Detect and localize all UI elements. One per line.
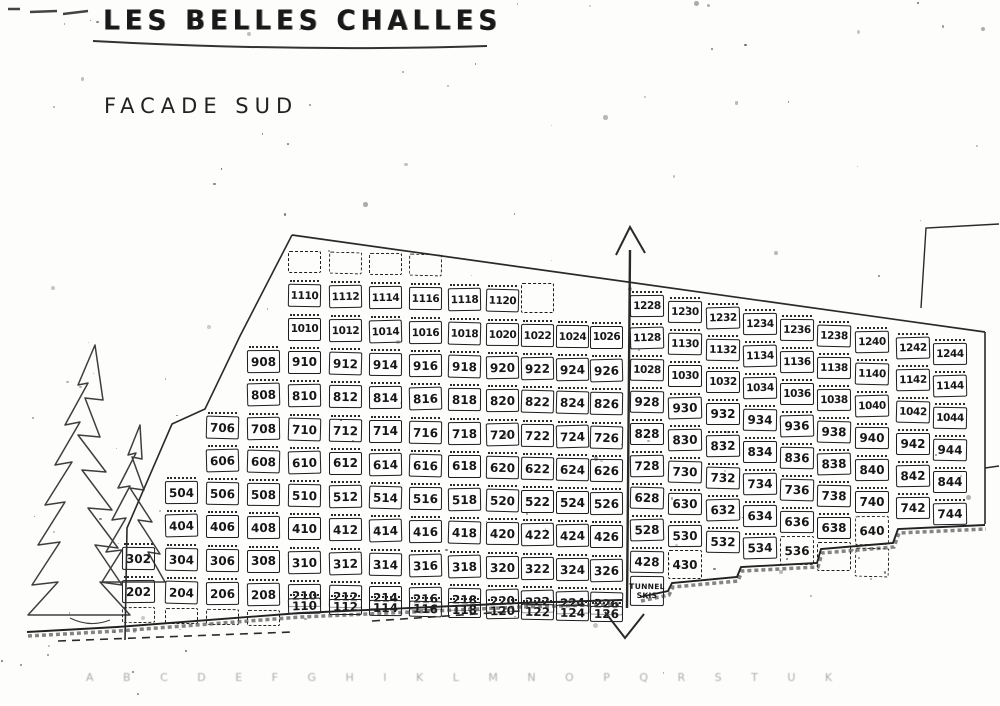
unit-920: 920 [486,349,519,379]
unit-828: 828 [630,416,664,445]
unit-626: 626 [590,452,623,482]
unit-616: 616 [409,447,442,477]
unit-732: 732 [706,460,740,489]
unit-122: 122 [521,598,554,620]
unit-734: 734 [743,466,777,495]
unit-206: 206 [206,575,239,605]
unit-914: 914 [369,346,402,376]
unit-430: 430 [668,550,702,579]
ghost-cell [288,251,321,273]
unit-1032: 1032 [706,364,740,393]
unit-1042: 1042 [896,394,930,423]
unit-1144: 1144 [933,368,967,397]
unit-424: 424 [556,517,589,547]
unit-418: 418 [448,514,481,544]
unit-610: 610 [288,444,321,474]
ghost-cell [817,542,851,571]
unit-528: 528 [630,512,664,541]
unit-208: 208 [247,576,280,606]
unit-742: 742 [896,490,930,519]
unit-924: 924 [556,351,589,381]
unit-512: 512 [329,478,362,508]
unit-306: 306 [206,542,239,572]
unit-622: 622 [521,450,554,480]
ghost-cell [206,609,239,625]
unit-1022: 1022 [521,317,554,347]
unit-304: 304 [165,541,198,571]
ghost-cell [409,254,442,276]
unit-1242: 1242 [896,330,930,359]
unit-940: 940 [855,420,889,449]
unit-314: 314 [369,546,402,576]
unit-618: 618 [448,448,481,478]
unit-416: 416 [409,513,442,543]
unit-840: 840 [855,452,889,481]
ghost-cell [122,607,155,623]
unit-114: 114 [369,594,402,616]
unit-526: 526 [590,485,623,515]
unit-126: 126 [590,600,623,622]
unit-1236: 1236 [780,312,814,341]
unit-724: 724 [556,418,589,448]
unit-832: 832 [706,428,740,457]
unit-524: 524 [556,484,589,514]
unit-1020: 1020 [486,316,519,346]
unit-710: 710 [288,411,321,441]
unit-912: 912 [329,345,362,375]
unit-120: 120 [486,597,519,619]
unit-816: 816 [409,380,442,410]
unit-202: 202 [122,573,155,603]
unit-930: 930 [668,390,702,419]
unit-406: 406 [206,508,239,538]
unit-310: 310 [288,544,321,574]
unit-824: 824 [556,384,589,414]
unit-414: 414 [369,512,402,542]
unit-116: 116 [409,595,442,617]
unit-1118: 1118 [448,281,481,311]
unit-518: 518 [448,481,481,511]
unit-636: 636 [780,504,814,533]
unit-938: 938 [817,414,851,443]
unit-744: 744 [933,496,967,525]
unit-736: 736 [780,472,814,501]
unit-506: 506 [206,475,239,505]
unit-1012: 1012 [329,312,362,342]
unit-530: 530 [668,518,702,547]
unit-1240: 1240 [855,324,889,353]
unit-818: 818 [448,381,481,411]
unit-1128: 1128 [630,320,664,349]
unit-928: 928 [630,384,664,413]
ghost-cell [521,283,554,313]
unit-312: 312 [329,545,362,575]
unit-834: 834 [743,434,777,463]
unit-638: 638 [817,510,851,539]
unit-508: 508 [247,476,280,506]
unit-712: 712 [329,412,362,442]
unit-516: 516 [409,480,442,510]
unit-812: 812 [329,378,362,408]
unit-1026: 1026 [590,319,623,349]
unit-934: 934 [743,402,777,431]
unit-404: 404 [165,507,198,537]
unit-412: 412 [329,511,362,541]
unit-1244: 1244 [933,336,967,365]
unit-606: 606 [206,442,239,472]
unit-534: 534 [743,530,777,559]
unit-124: 124 [556,599,589,621]
unit-728: 728 [630,448,664,477]
unit-628: 628 [630,480,664,509]
unit-302: 302 [122,540,155,570]
unit-814: 814 [369,379,402,409]
unit-808: 808 [247,376,280,406]
unit-316: 316 [409,547,442,577]
unit-1016: 1016 [409,314,442,344]
unit-844: 844 [933,464,967,493]
unit-730: 730 [668,454,702,483]
unit-1228: 1228 [630,288,664,317]
ghost-cell [855,548,889,577]
unit-318: 318 [448,548,481,578]
unit-918: 918 [448,348,481,378]
unit-718: 718 [448,415,481,445]
unit-532: 532 [706,524,740,553]
unit-1132: 1132 [706,332,740,361]
unit-1138: 1138 [817,350,851,379]
unit-640: 640 [855,516,889,545]
unit-706: 706 [206,409,239,439]
unit-908: 908 [247,343,280,373]
unit-830: 830 [668,422,702,451]
unit-1014: 1014 [369,313,402,343]
unit-510: 510 [288,477,321,507]
unit-1112: 1112 [329,278,362,308]
unit-620: 620 [486,449,519,479]
unit-1232: 1232 [706,300,740,329]
unit-714: 714 [369,413,402,443]
unit-822: 822 [521,383,554,413]
unit-1028: 1028 [630,352,664,381]
unit-1234: 1234 [743,306,777,335]
unit-944: 944 [933,432,967,461]
unit-1140: 1140 [855,356,889,385]
unit-926: 926 [590,352,623,382]
unit-608: 608 [247,443,280,473]
unit-612: 612 [329,445,362,475]
unit-614: 614 [369,446,402,476]
unit-1116: 1116 [409,280,442,310]
unit-426: 426 [590,518,623,548]
unit-522: 522 [521,483,554,513]
unit-738: 738 [817,478,851,507]
unit-204: 204 [165,574,198,604]
unit-708: 708 [247,410,280,440]
unit-1238: 1238 [817,318,851,347]
unit-1018: 1018 [448,315,481,345]
unit-308: 308 [247,543,280,573]
unit-1134: 1134 [743,338,777,367]
unit-1044: 1044 [933,400,967,429]
unit-322: 322 [521,550,554,580]
unit-110: 110 [288,592,321,614]
unit-grid: 3022025044043042047066065064063062069088… [0,0,1000,706]
unit-504: 504 [165,474,198,504]
unit-408: 408 [247,509,280,539]
unit-422: 422 [521,516,554,546]
unit-410: 410 [288,510,321,540]
unit-726: 726 [590,419,623,449]
unit-632: 632 [706,492,740,521]
unit-634: 634 [743,498,777,527]
ghost-cell [247,610,280,626]
unit-1024: 1024 [556,318,589,348]
ghost-cell [329,252,362,274]
unit-820: 820 [486,382,519,412]
unit-910: 910 [288,344,321,374]
unit-1034: 1034 [743,370,777,399]
unit-1036: 1036 [780,376,814,405]
unit-536: 536 [780,536,814,565]
unit-932: 932 [706,396,740,425]
unit-624: 624 [556,451,589,481]
unit-428: 428 [630,544,664,573]
unit-514: 514 [369,479,402,509]
unit-1038: 1038 [817,382,851,411]
unit-1130: 1130 [668,326,702,355]
unit-326: 326 [590,552,623,582]
facade-diagram-scan: LES BELLES CHALLES FACADE SUD 3022025044… [0,0,1000,706]
tunnel-skis-cell: TUNNELSKIS [630,576,664,606]
unit-838: 838 [817,446,851,475]
unit-1136: 1136 [780,344,814,373]
unit-630: 630 [668,486,702,515]
unit-1142: 1142 [896,362,930,391]
unit-720: 720 [486,416,519,446]
ghost-cell [165,608,198,624]
unit-942: 942 [896,426,930,455]
unit-916: 916 [409,347,442,377]
unit-1010: 1010 [288,311,321,341]
unit-826: 826 [590,385,623,415]
unit-922: 922 [521,350,554,380]
unit-1230: 1230 [668,294,702,323]
unit-810: 810 [288,377,321,407]
unit-112: 112 [329,593,362,615]
unit-722: 722 [521,417,554,447]
unit-1030: 1030 [668,358,702,387]
unit-842: 842 [896,458,930,487]
unit-520: 520 [486,482,519,512]
ghost-cell [369,253,402,275]
unit-1114: 1114 [369,279,402,309]
unit-716: 716 [409,414,442,444]
unit-1110: 1110 [288,277,321,307]
unit-1040: 1040 [855,388,889,417]
unit-1120: 1120 [486,282,519,312]
unit-118: 118 [448,596,481,618]
unit-936: 936 [780,408,814,437]
unit-320: 320 [486,549,519,579]
unit-324: 324 [556,551,589,581]
unit-740: 740 [855,484,889,513]
unit-836: 836 [780,440,814,469]
unit-420: 420 [486,515,519,545]
